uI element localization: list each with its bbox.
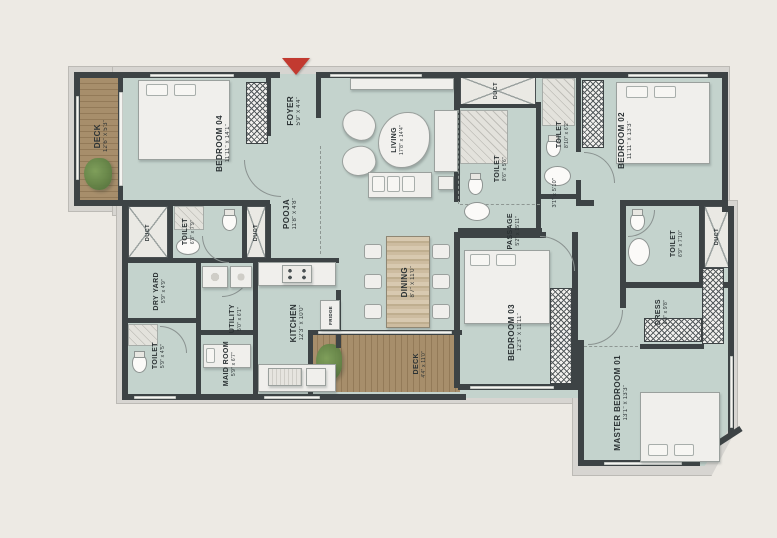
window bbox=[604, 462, 682, 466]
wardrobe-dress-vertical bbox=[702, 268, 724, 344]
shower-toilet-bed02 bbox=[542, 78, 575, 126]
pillow bbox=[626, 86, 648, 98]
duct-box-left-b bbox=[246, 206, 266, 258]
kitchen-sink-bowl bbox=[306, 368, 326, 386]
wall bbox=[120, 200, 270, 206]
tv-console bbox=[350, 78, 454, 90]
wall bbox=[536, 102, 541, 232]
kitchen-sink bbox=[268, 368, 302, 386]
wall bbox=[196, 262, 201, 334]
wall bbox=[640, 344, 704, 349]
wall bbox=[722, 72, 728, 212]
window bbox=[264, 396, 320, 400]
wc-toilet-master bbox=[630, 212, 645, 231]
pillow bbox=[146, 84, 168, 96]
wall bbox=[196, 330, 258, 335]
pillow bbox=[206, 348, 215, 363]
wall bbox=[122, 200, 128, 400]
wall bbox=[620, 200, 728, 206]
window bbox=[76, 96, 80, 180]
sofa-cushion bbox=[402, 176, 415, 192]
wall bbox=[196, 334, 201, 396]
pillow bbox=[470, 254, 490, 266]
wardrobe-bedroom-03 bbox=[550, 288, 572, 384]
dining-table bbox=[386, 236, 430, 328]
wc-toilet-maid bbox=[132, 354, 147, 373]
pillow bbox=[654, 86, 676, 98]
dining-chair bbox=[432, 244, 450, 259]
wardrobe-dress-horizontal bbox=[644, 318, 702, 342]
wall bbox=[576, 200, 594, 206]
wall bbox=[620, 206, 626, 290]
dining-chair bbox=[432, 274, 450, 289]
wall bbox=[266, 204, 271, 262]
basin-toilet-bed04 bbox=[176, 238, 200, 255]
entry-arrow-icon bbox=[282, 58, 310, 75]
wall bbox=[576, 72, 581, 152]
wardrobe-bedroom-04 bbox=[246, 82, 268, 144]
dining-chair bbox=[432, 304, 450, 319]
window bbox=[730, 356, 734, 428]
wc-toilet-bed04 bbox=[222, 212, 237, 231]
basin-toilet-master bbox=[628, 238, 650, 266]
dining-chair bbox=[364, 304, 382, 319]
wall bbox=[460, 104, 536, 108]
wall bbox=[454, 232, 460, 388]
window bbox=[470, 386, 554, 390]
fridge bbox=[320, 300, 340, 330]
pillow bbox=[674, 444, 694, 456]
dining-chair bbox=[364, 244, 382, 259]
wall bbox=[578, 340, 584, 466]
floor-plan-canvas: DECK 12'6" x 5'3" BEDROOM 04 11'11" x 14… bbox=[0, 0, 777, 538]
shower-toilet-common bbox=[460, 110, 508, 164]
washing-machine bbox=[202, 266, 228, 288]
side-table bbox=[438, 176, 454, 190]
wall bbox=[620, 286, 626, 308]
window bbox=[330, 74, 422, 78]
hob bbox=[282, 265, 312, 283]
wall bbox=[316, 76, 321, 118]
plant-deck-top bbox=[84, 158, 112, 190]
duct-box-top bbox=[460, 76, 536, 106]
wall bbox=[122, 318, 200, 323]
basin-toilet-bed02 bbox=[544, 166, 571, 186]
dining-chair bbox=[364, 274, 382, 289]
side-cabinet bbox=[434, 110, 458, 172]
wall bbox=[242, 204, 247, 260]
wardrobe-bedroom-02 bbox=[582, 80, 604, 148]
wc-toilet-common bbox=[468, 176, 483, 195]
wc-toilet-bed02 bbox=[546, 138, 561, 157]
shower-toilet-maid bbox=[128, 324, 158, 346]
wall bbox=[572, 232, 578, 388]
wall bbox=[168, 204, 173, 260]
wall bbox=[458, 232, 546, 238]
dashed-line bbox=[320, 146, 321, 254]
window bbox=[134, 396, 176, 400]
window bbox=[150, 74, 234, 78]
basin-toilet-common bbox=[464, 202, 490, 221]
wall bbox=[540, 194, 580, 199]
utility-appliance bbox=[230, 266, 252, 288]
dashed-line bbox=[584, 346, 638, 347]
window-sliding-deck bbox=[318, 331, 452, 334]
dashed-line bbox=[458, 110, 459, 204]
duct-box-right bbox=[704, 206, 730, 268]
pillow bbox=[648, 444, 668, 456]
sofa-cushion bbox=[372, 176, 385, 192]
pillow bbox=[496, 254, 516, 266]
window-sliding-deck-top bbox=[119, 92, 123, 186]
sofa-cushion bbox=[387, 176, 400, 192]
duct-box-left-a bbox=[128, 206, 168, 258]
window bbox=[628, 74, 708, 78]
pillow bbox=[174, 84, 196, 96]
shower-toilet-bed04 bbox=[174, 206, 204, 230]
